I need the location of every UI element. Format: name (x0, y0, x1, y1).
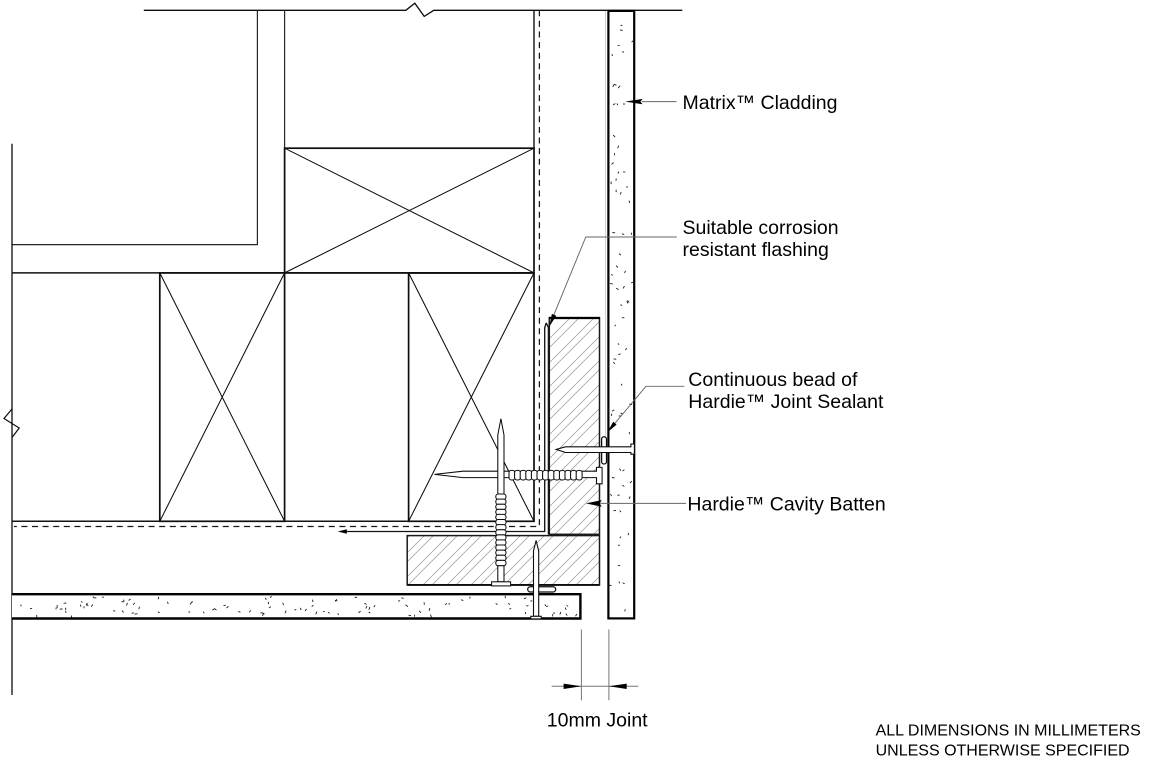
svg-text:Hardie™ Cavity Batten: Hardie™ Cavity Batten (687, 493, 885, 515)
svg-text:Hardie™ Joint Sealant: Hardie™ Joint Sealant (688, 391, 884, 413)
svg-text:ALL DIMENSIONS IN MILLIMETERS: ALL DIMENSIONS IN MILLIMETERS (876, 722, 1141, 739)
svg-text:Matrix™ Cladding: Matrix™ Cladding (683, 92, 838, 114)
svg-text:10mm Joint: 10mm Joint (547, 709, 648, 731)
svg-text:UNLESS OTHERWISE SPECIFIED: UNLESS OTHERWISE SPECIFIED (876, 742, 1130, 759)
svg-text:resistant flashing: resistant flashing (683, 239, 829, 261)
svg-text:Suitable corrosion: Suitable corrosion (683, 217, 839, 239)
svg-text:Continuous bead of: Continuous bead of (688, 369, 858, 391)
